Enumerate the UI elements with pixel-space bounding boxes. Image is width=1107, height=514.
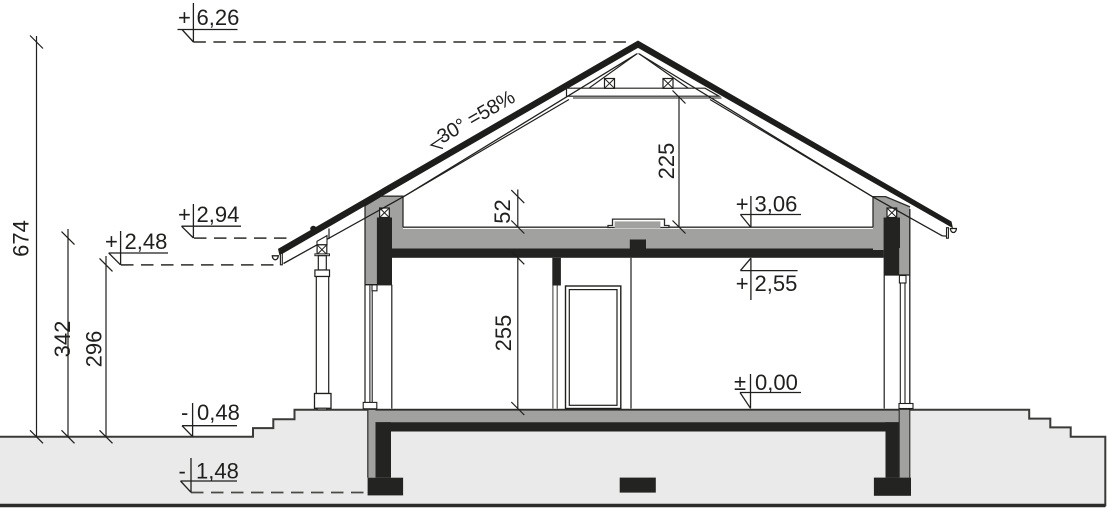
- svg-text:-: -: [179, 459, 186, 484]
- svg-text:296: 296: [82, 331, 107, 368]
- svg-text:3,06: 3,06: [755, 192, 798, 217]
- svg-text:+: +: [178, 5, 191, 30]
- svg-text:674: 674: [9, 220, 34, 257]
- svg-text:52: 52: [490, 199, 515, 223]
- svg-text:6,26: 6,26: [197, 5, 240, 30]
- svg-text:+: +: [736, 271, 749, 296]
- svg-text:225: 225: [654, 143, 679, 180]
- svg-text:+: +: [105, 229, 118, 254]
- svg-text:0,00: 0,00: [755, 370, 798, 395]
- svg-text:+: +: [736, 192, 749, 217]
- svg-text:2,94: 2,94: [197, 202, 240, 227]
- svg-text:2,55: 2,55: [755, 271, 798, 296]
- svg-text:0,48: 0,48: [197, 400, 240, 425]
- svg-text:255: 255: [491, 315, 516, 352]
- svg-text:342: 342: [50, 321, 75, 358]
- svg-text:1,48: 1,48: [196, 459, 239, 484]
- svg-text:-: -: [181, 400, 188, 425]
- svg-text:2,48: 2,48: [125, 229, 168, 254]
- svg-text:±: ±: [734, 370, 746, 395]
- svg-text:+: +: [178, 202, 191, 227]
